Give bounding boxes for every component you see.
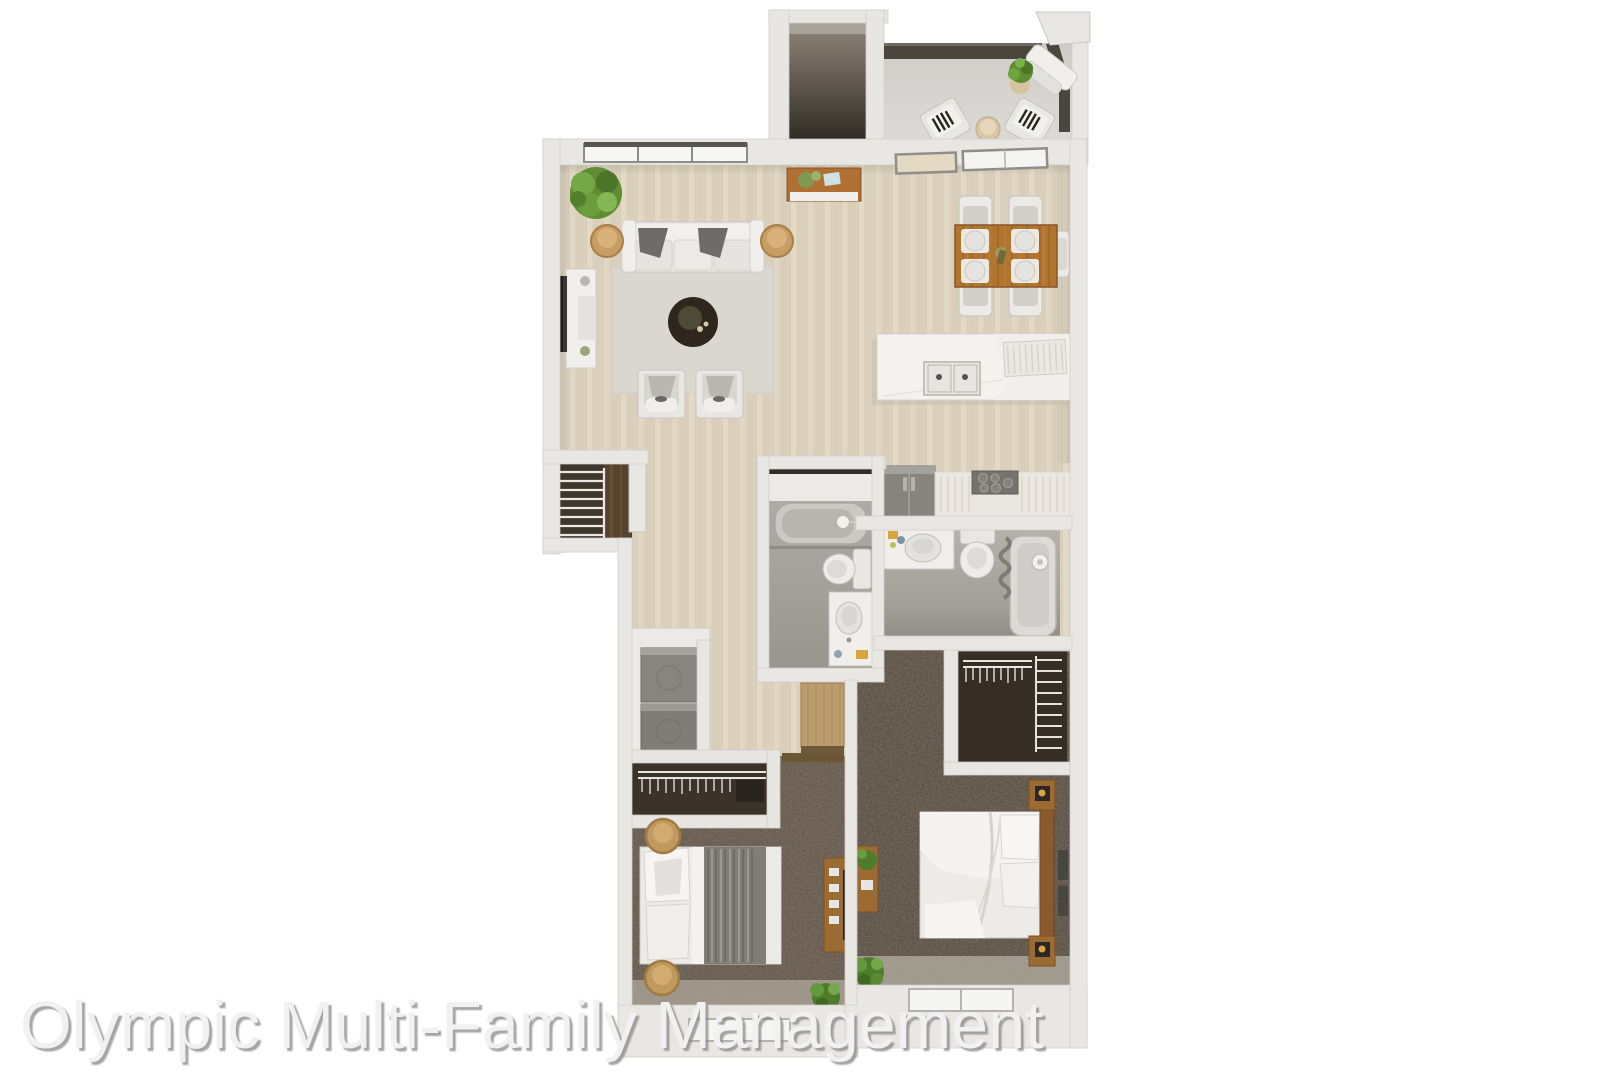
svg-text:Olympic Multi-Family Managemen: Olympic Multi-Family Management bbox=[20, 989, 1044, 1063]
